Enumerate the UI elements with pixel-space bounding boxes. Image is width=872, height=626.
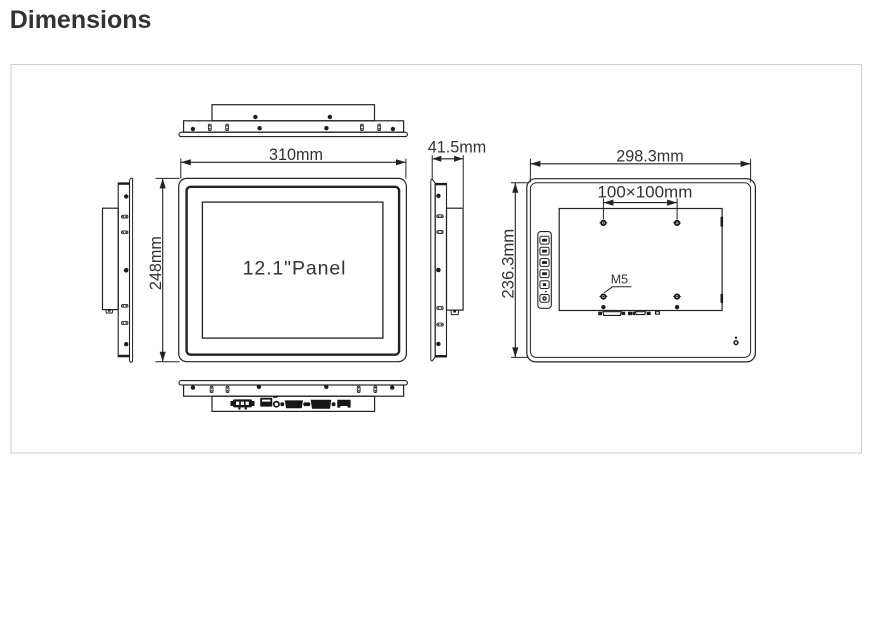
svg-text:236.3mm: 236.3mm (498, 229, 517, 299)
svg-text:100×100mm: 100×100mm (597, 182, 692, 201)
svg-text:310mm: 310mm (269, 146, 323, 164)
svg-text:Dimensions: Dimensions (10, 6, 152, 34)
svg-text:M5: M5 (611, 272, 628, 286)
svg-text:12.1"Panel: 12.1"Panel (243, 258, 347, 280)
svg-text:298.3mm: 298.3mm (616, 148, 683, 166)
svg-text:41.5mm: 41.5mm (428, 138, 486, 156)
